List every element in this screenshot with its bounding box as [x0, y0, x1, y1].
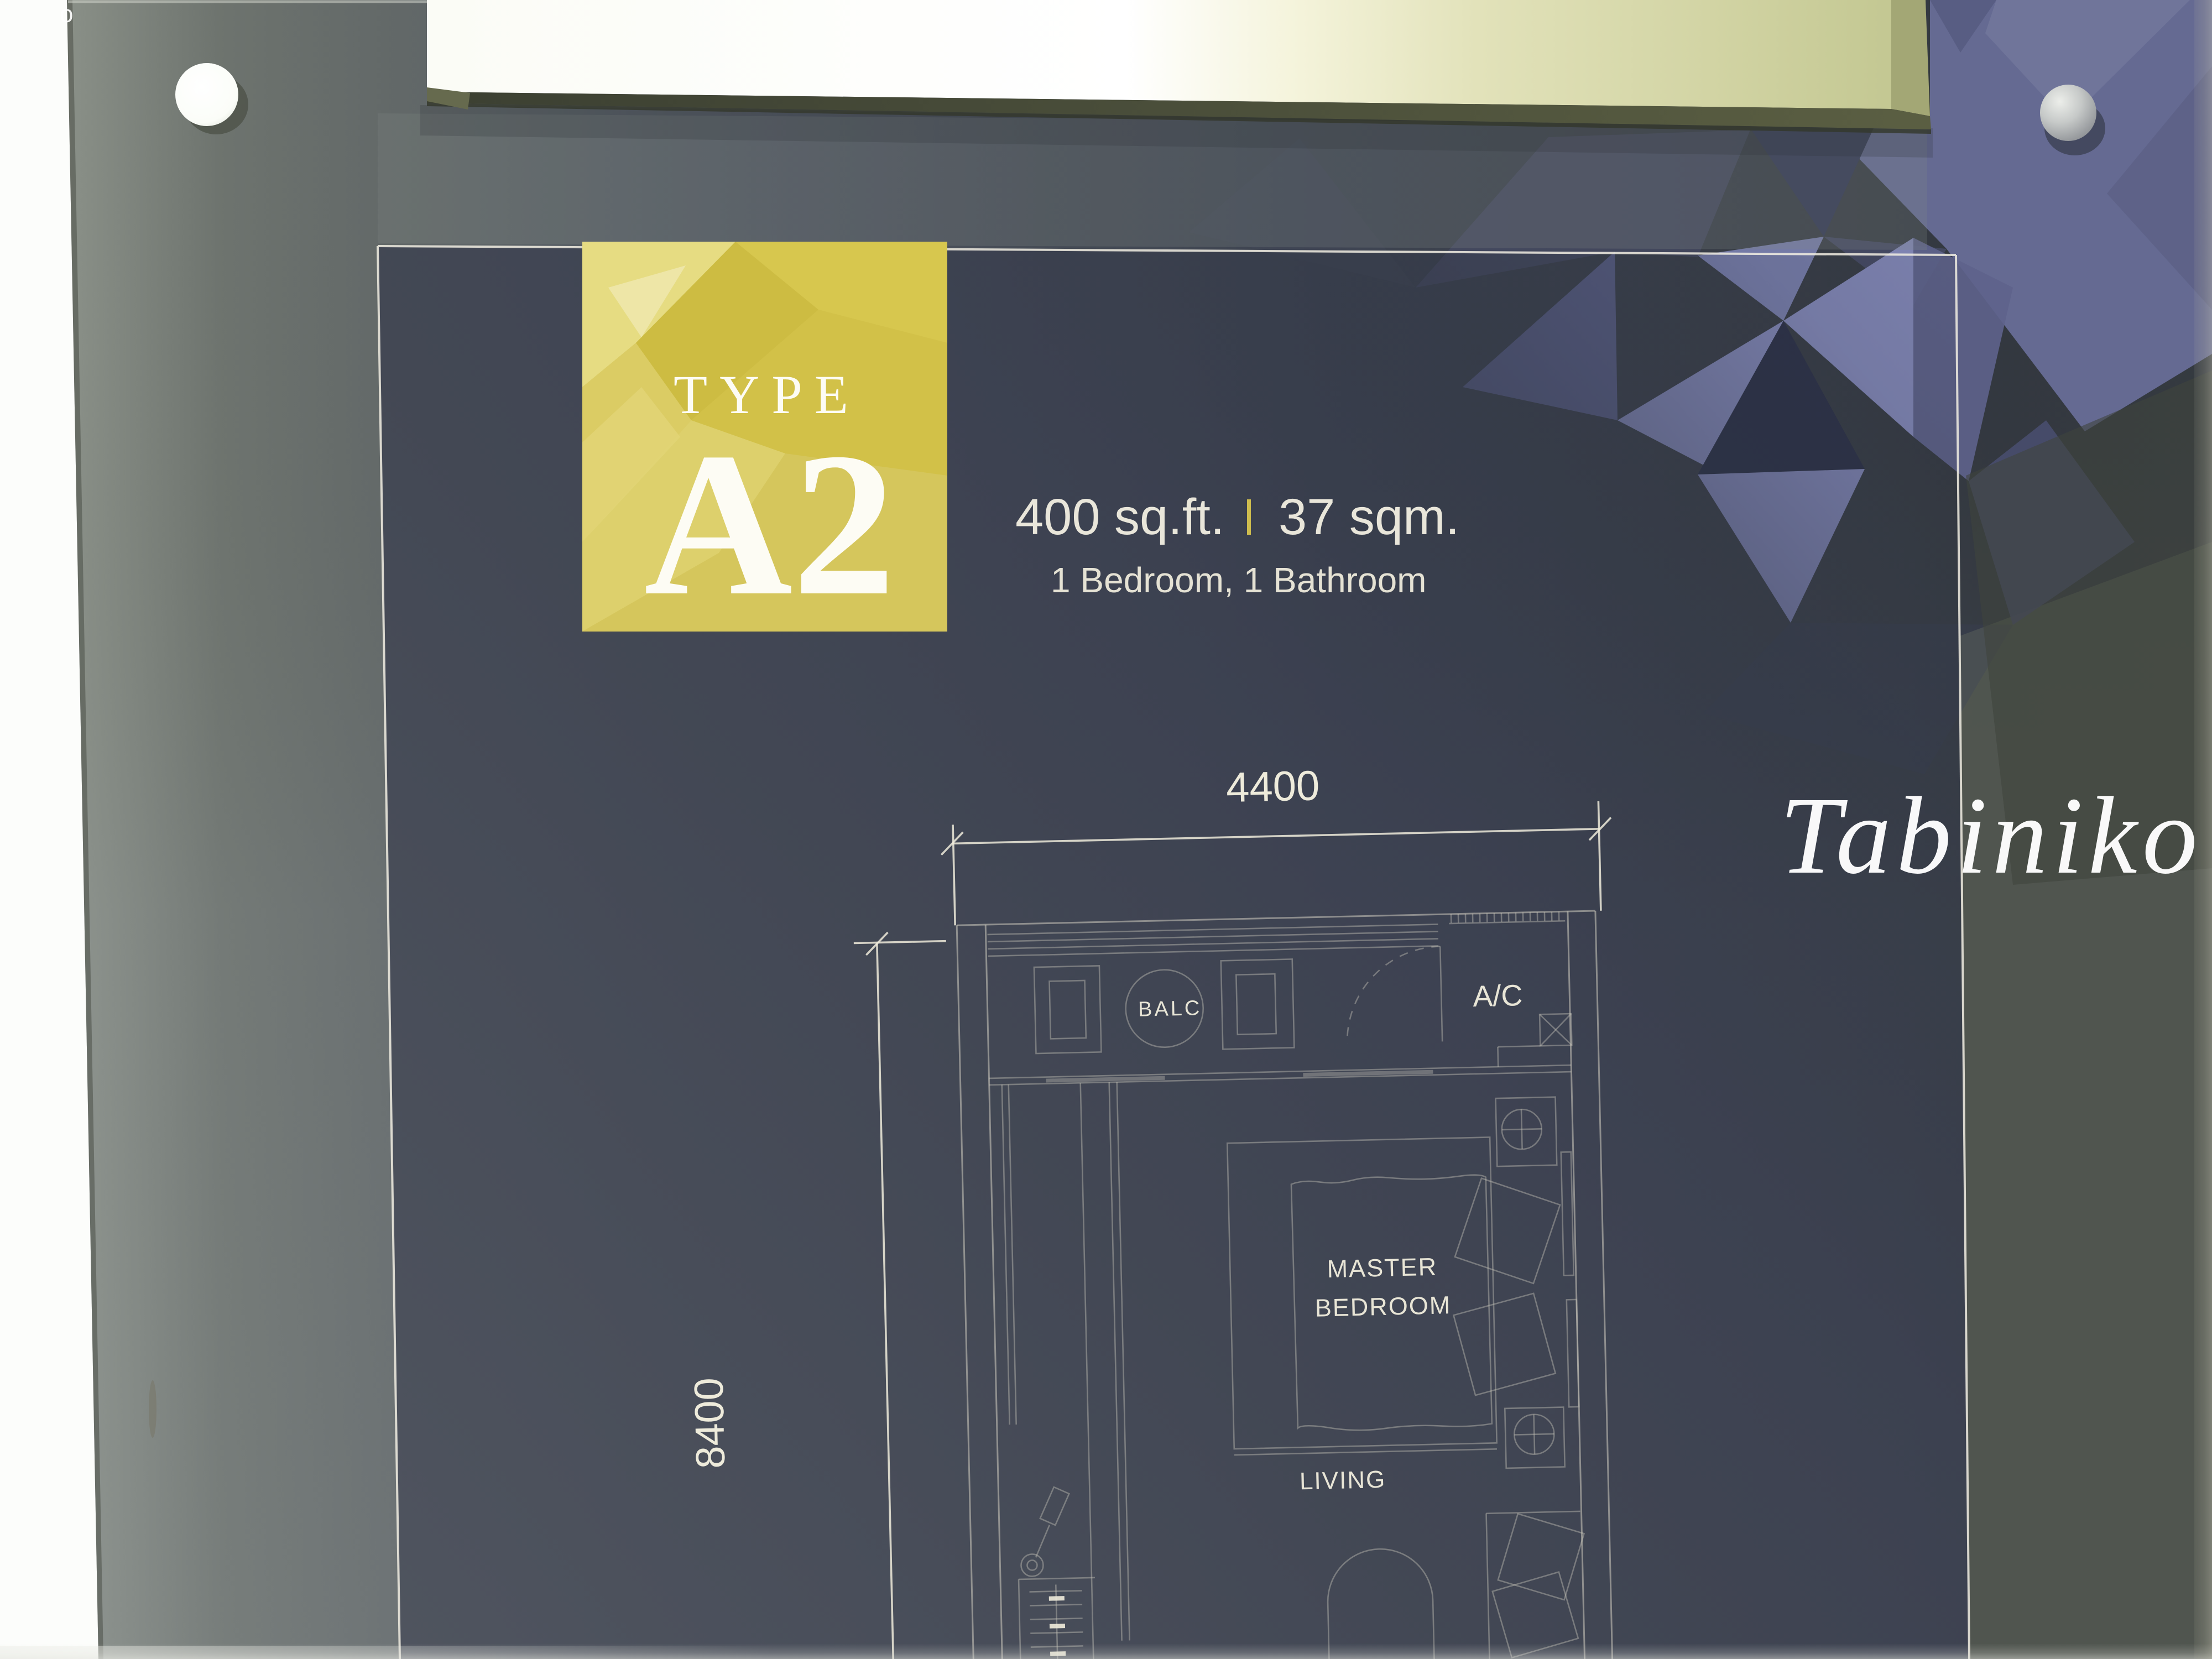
svg-text:A/C: A/C — [1473, 979, 1523, 1013]
svg-text:BALC: BALC — [1138, 997, 1202, 1021]
svg-text:400 sq.ft.: 400 sq.ft. — [1015, 489, 1224, 545]
svg-text:BEDROOM: BEDROOM — [1314, 1291, 1452, 1322]
svg-text:A2: A2 — [644, 411, 896, 638]
svg-text:4400: 4400 — [1225, 762, 1320, 811]
svg-text:MASTER: MASTER — [1327, 1253, 1438, 1284]
svg-text:Tabiniko: Tabiniko — [1780, 775, 2203, 897]
svg-text:37 sqm.: 37 sqm. — [1279, 489, 1459, 545]
svg-text:o: o — [60, 1, 73, 28]
svg-text:LIVING: LIVING — [1299, 1466, 1386, 1495]
svg-text:8400: 8400 — [686, 1377, 734, 1469]
svg-text:1 Bedroom, 1 Bathroom: 1 Bedroom, 1 Bathroom — [1051, 560, 1426, 600]
